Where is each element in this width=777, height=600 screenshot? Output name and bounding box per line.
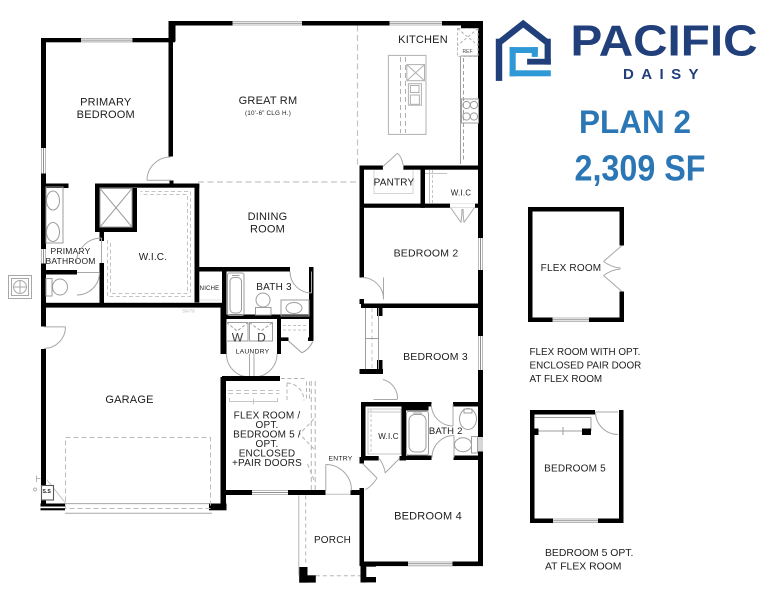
- svg-text:FLEX ROOM WITH OPT.: FLEX ROOM WITH OPT.: [530, 347, 641, 358]
- svg-text:ENCLOSED PAIR DOOR: ENCLOSED PAIR DOOR: [530, 361, 642, 372]
- svg-text:PRIMARY: PRIMARY: [51, 246, 91, 256]
- svg-text:S.S: S.S: [43, 489, 52, 495]
- svg-text:W.I.C.: W.I.C.: [139, 252, 167, 263]
- svg-text:BATHROOM: BATHROOM: [45, 256, 95, 266]
- svg-text:W.I.C: W.I.C: [378, 432, 399, 441]
- svg-text:(10’-6” CLG H.): (10’-6” CLG H.): [245, 110, 291, 117]
- svg-text:DINING: DINING: [248, 211, 288, 223]
- svg-text:BEDROOM 5 OPT.: BEDROOM 5 OPT.: [545, 548, 633, 559]
- svg-text:LAUNDRY: LAUNDRY: [236, 349, 270, 356]
- svg-text:KITCHEN: KITCHEN: [398, 34, 448, 46]
- svg-text:BEDROOM 3: BEDROOM 3: [403, 351, 468, 363]
- svg-text:W.I.C: W.I.C: [451, 189, 472, 198]
- svg-text:PRIMARY: PRIMARY: [80, 97, 132, 109]
- svg-text:BATH 2: BATH 2: [429, 426, 463, 437]
- svg-text:PLAN 2: PLAN 2: [579, 104, 691, 140]
- svg-text:BEDROOM: BEDROOM: [77, 109, 135, 121]
- svg-text:PORCH: PORCH: [314, 535, 351, 546]
- svg-text:BATH 3: BATH 3: [256, 282, 292, 293]
- svg-text:PANTRY: PANTRY: [374, 178, 415, 189]
- svg-text:ENTRY: ENTRY: [329, 456, 353, 463]
- svg-text:BEDROOM 2: BEDROOM 2: [394, 248, 459, 260]
- svg-text:AT FLEX ROOM: AT FLEX ROOM: [545, 562, 621, 573]
- svg-text:NICHE: NICHE: [200, 286, 220, 292]
- svg-text:AT FLEX ROOM: AT FLEX ROOM: [530, 374, 603, 385]
- svg-text:GREAT RM: GREAT RM: [239, 95, 298, 107]
- svg-text:REF: REF: [463, 49, 473, 55]
- svg-text:2,309 SF: 2,309 SF: [575, 148, 706, 189]
- svg-text:FLEX ROOM: FLEX ROOM: [541, 263, 602, 274]
- svg-text:BEDROOM 5: BEDROOM 5: [544, 464, 606, 475]
- svg-text:PACIFIC: PACIFIC: [571, 17, 758, 66]
- svg-text:W: W: [232, 331, 244, 345]
- svg-text:GARAGE: GARAGE: [105, 394, 153, 406]
- svg-text:BEDROOM 4: BEDROOM 4: [394, 511, 462, 523]
- svg-text:SK/79: SK/79: [182, 309, 195, 314]
- svg-text:D: D: [257, 331, 266, 345]
- svg-text:ROOM: ROOM: [250, 224, 285, 236]
- svg-text:+PAIR DOORS: +PAIR DOORS: [232, 458, 302, 469]
